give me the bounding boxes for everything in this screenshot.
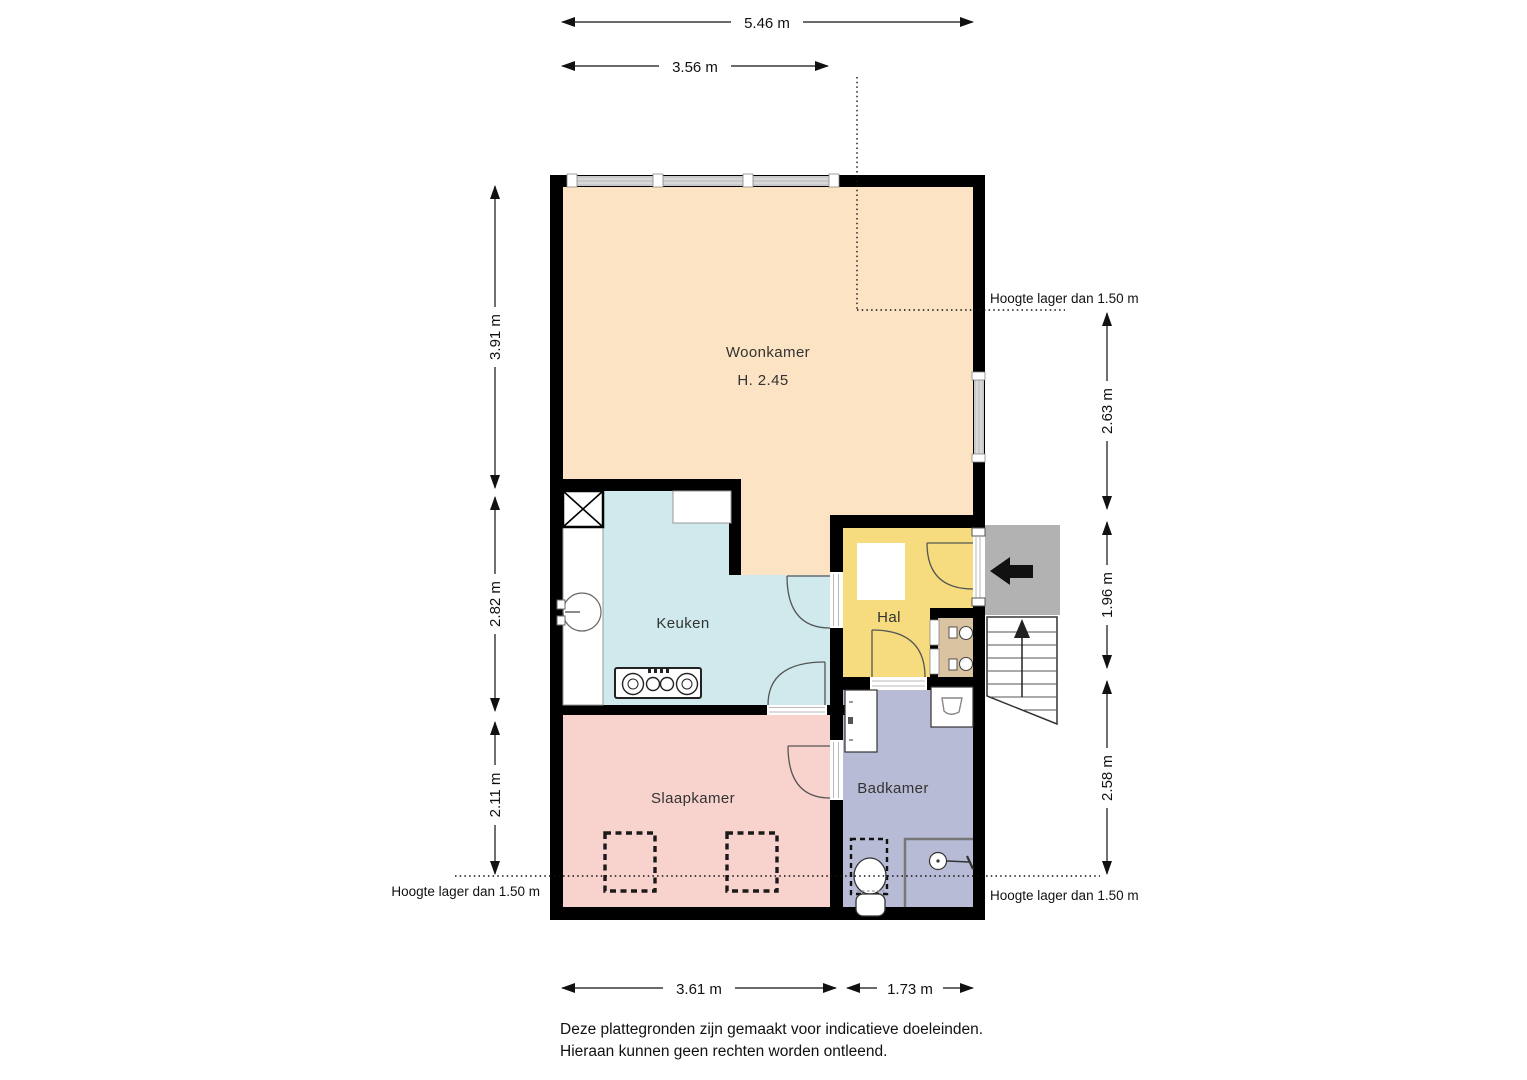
dim-right-mid: 1.96 m [1099, 572, 1116, 618]
label-woonkamer: Woonkamer [726, 344, 810, 361]
stove-icon [615, 668, 701, 698]
hall-cabinet [857, 543, 905, 600]
shaft-icon [563, 491, 603, 527]
height-note-bottom-right: Hoogte lager dan 1.50 m [990, 888, 1139, 903]
meter-icon [960, 627, 973, 640]
label-slaapkamer: Slaapkamer [651, 790, 735, 807]
dim-top-partial: 3.56 m [672, 59, 718, 76]
dim-top-total: 5.46 m [744, 15, 790, 32]
label-hal: Hal [877, 609, 901, 626]
dim-left-bottom: 2.11 m [487, 773, 504, 818]
slaapkamer-badkamer-opening [830, 740, 843, 800]
washbasin-icon [931, 687, 973, 727]
hal-badkamer-opening [870, 677, 927, 690]
dim-right-bottom: 2.58 m [1099, 755, 1116, 801]
height-note-bottom-left: Hoogte lager dan 1.50 m [391, 884, 540, 899]
meter-icon [960, 658, 973, 671]
dim-right-top: 2.63 m [1099, 388, 1116, 434]
floor-plan-canvas: 5.46 m 3.56 m 3.61 m 1.73 m 3.91 m 2.82 … [0, 0, 1527, 1080]
label-woonkamer-height: H. 2.45 [737, 372, 788, 389]
bathroom-cabinet [845, 690, 877, 752]
label-badkamer: Badkamer [857, 780, 929, 797]
keuken-hal-opening [830, 572, 843, 628]
height-note-top-right: Hoogte lager dan 1.50 m [990, 291, 1139, 306]
dim-left-top: 3.91 m [487, 314, 504, 360]
disclaimer-line2: Hieraan kunnen geen rechten worden ontle… [560, 1043, 887, 1060]
dim-bottom-right: 1.73 m [887, 981, 933, 998]
dim-left-mid: 2.82 m [487, 581, 504, 627]
dim-bottom-left: 3.61 m [676, 981, 722, 998]
label-keuken: Keuken [656, 615, 709, 632]
entrance-landing [985, 525, 1060, 615]
front-door-opening [972, 528, 985, 606]
disclaimer: Deze plattegronden zijn gemaakt voor ind… [560, 1021, 983, 1060]
kitchen-counter-top [673, 491, 731, 523]
disclaimer-line1: Deze plattegronden zijn gemaakt voor ind… [560, 1021, 983, 1038]
floor-plan-drawing: 5.46 m 3.56 m 3.61 m 1.73 m 3.91 m 2.82 … [0, 0, 1527, 1080]
room-areas [563, 187, 973, 907]
staircase [987, 617, 1057, 724]
keuken-slaapkamer-opening [767, 705, 827, 715]
